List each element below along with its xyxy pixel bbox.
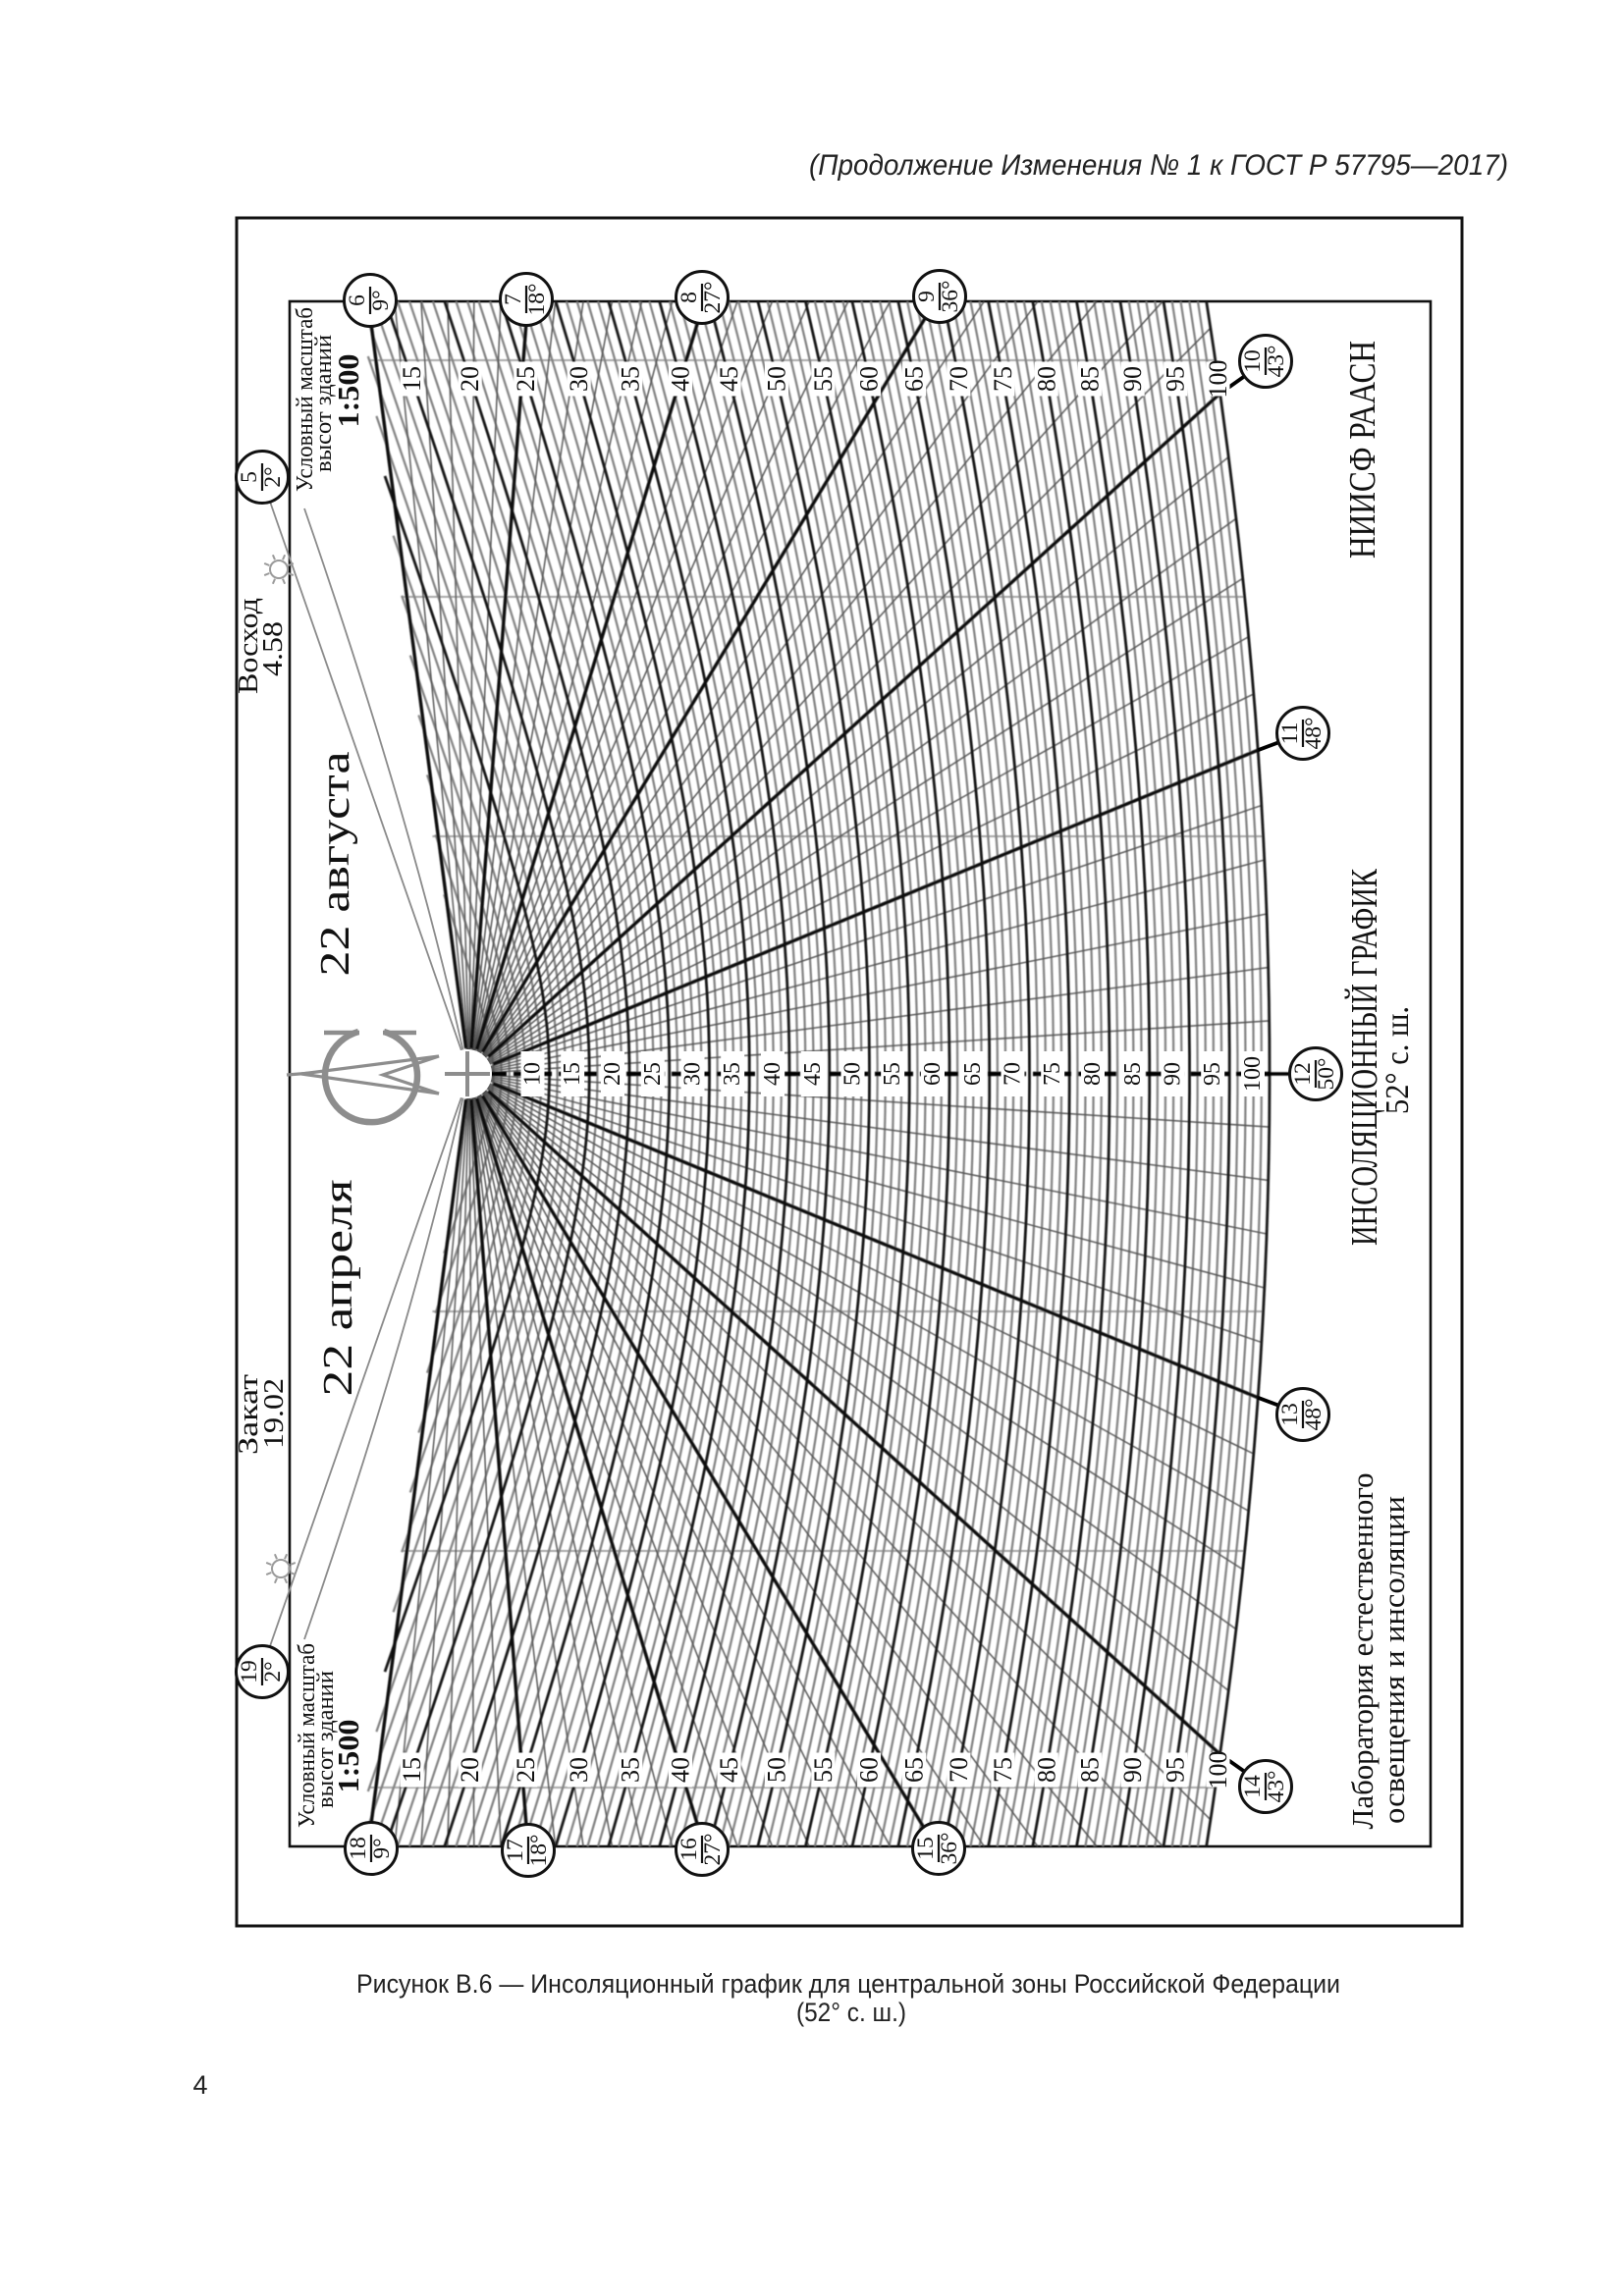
svg-text:30: 30 (680, 1062, 706, 1086)
svg-text:55: 55 (880, 1062, 905, 1086)
svg-text:22 августа: 22 августа (313, 751, 358, 976)
svg-text:55: 55 (809, 366, 838, 392)
svg-text:36°: 36° (938, 281, 963, 313)
svg-text:20: 20 (456, 1757, 484, 1783)
svg-text:8: 8 (677, 292, 702, 303)
svg-text:48°: 48° (1301, 718, 1326, 750)
svg-text:15: 15 (560, 1062, 585, 1086)
svg-text:85: 85 (1120, 1062, 1146, 1086)
svg-text:95: 95 (1200, 1062, 1225, 1086)
svg-text:9: 9 (914, 291, 940, 302)
svg-text:10: 10 (520, 1062, 546, 1086)
svg-text:19: 19 (237, 1660, 262, 1683)
svg-text:(52° с. ш.): (52° с. ш.) (796, 1998, 906, 2027)
svg-text:35: 35 (720, 1062, 745, 1086)
svg-text:19.02: 19.02 (259, 1378, 290, 1449)
svg-text:4.58: 4.58 (258, 621, 289, 676)
svg-text:100: 100 (1240, 1056, 1266, 1092)
svg-text:85: 85 (1075, 1757, 1104, 1783)
svg-text:13: 13 (1277, 1403, 1303, 1426)
svg-text:70: 70 (945, 366, 973, 392)
svg-text:43°: 43° (1264, 1771, 1289, 1803)
svg-text:27°: 27° (700, 1834, 726, 1866)
svg-text:80: 80 (1032, 1757, 1060, 1783)
svg-text:(Продолжение Изменения № 1 к Г: (Продолжение Изменения № 1 к ГОСТ Р 5779… (809, 149, 1508, 182)
svg-text:20: 20 (600, 1062, 625, 1086)
svg-text:45: 45 (800, 1062, 826, 1086)
svg-text:27°: 27° (700, 282, 726, 314)
svg-text:75: 75 (989, 366, 1017, 392)
svg-text:18°: 18° (524, 284, 550, 316)
svg-text:50: 50 (840, 1062, 866, 1086)
svg-text:2°: 2° (260, 1661, 286, 1682)
svg-text:15: 15 (913, 1837, 939, 1860)
svg-text:10: 10 (1240, 349, 1266, 373)
svg-text:16: 16 (677, 1838, 702, 1861)
svg-text:35: 35 (617, 366, 645, 392)
svg-text:35: 35 (617, 1757, 645, 1783)
svg-text:50: 50 (763, 1757, 791, 1783)
svg-text:90: 90 (1161, 1062, 1186, 1086)
svg-text:5: 5 (237, 471, 262, 483)
svg-text:65: 65 (900, 366, 929, 392)
svg-text:12: 12 (1290, 1062, 1316, 1086)
svg-text:18°: 18° (526, 1835, 552, 1867)
svg-text:45: 45 (715, 1757, 743, 1783)
svg-text:15: 15 (398, 366, 426, 392)
svg-text:освещения и инсоляции: освещения и инсоляции (1377, 1496, 1411, 1824)
svg-text:100: 100 (1204, 1751, 1232, 1789)
svg-text:50: 50 (763, 366, 791, 392)
svg-text:4: 4 (192, 2070, 207, 2100)
svg-text:43°: 43° (1264, 346, 1289, 378)
svg-text:22 апреля: 22 апреля (316, 1180, 361, 1397)
svg-text:Рисунок В.6 — Инсоляционный гр: Рисунок В.6 — Инсоляционный график для ц… (356, 1969, 1340, 1999)
svg-text:25: 25 (640, 1062, 666, 1086)
svg-text:30: 30 (565, 366, 593, 392)
svg-text:55: 55 (809, 1757, 838, 1783)
svg-text:20: 20 (456, 366, 484, 392)
svg-text:52° с. ш.: 52° с. ш. (1380, 1006, 1416, 1114)
svg-text:90: 90 (1118, 366, 1147, 392)
svg-text:70: 70 (1001, 1062, 1026, 1086)
svg-text:90: 90 (1118, 1757, 1147, 1783)
svg-text:50°: 50° (1314, 1058, 1339, 1091)
svg-text:65: 65 (900, 1757, 929, 1783)
svg-text:Лаборатория естественного: Лаборатория естественного (1345, 1473, 1380, 1830)
svg-text:7: 7 (501, 294, 526, 305)
svg-text:80: 80 (1080, 1062, 1106, 1086)
svg-text:25: 25 (512, 366, 540, 392)
svg-text:9°: 9° (369, 1838, 395, 1858)
svg-text:100: 100 (1204, 360, 1232, 399)
svg-text:НИИСФ РААСН: НИИСФ РААСН (1342, 341, 1383, 559)
svg-text:14: 14 (1240, 1775, 1266, 1798)
svg-text:60: 60 (920, 1062, 946, 1086)
svg-text:30: 30 (565, 1757, 593, 1783)
svg-text:75: 75 (1040, 1062, 1065, 1086)
svg-text:18: 18 (346, 1837, 371, 1860)
svg-text:17: 17 (503, 1839, 528, 1862)
svg-text:45: 45 (715, 366, 743, 392)
svg-text:60: 60 (855, 1757, 884, 1783)
svg-text:36°: 36° (937, 1833, 962, 1865)
svg-text:9°: 9° (368, 290, 394, 310)
svg-text:85: 85 (1075, 366, 1104, 392)
svg-text:1:500: 1:500 (331, 1720, 365, 1793)
svg-text:95: 95 (1162, 366, 1190, 392)
svg-text:2°: 2° (260, 466, 286, 487)
svg-text:80: 80 (1032, 366, 1060, 392)
svg-text:60: 60 (855, 366, 884, 392)
svg-text:75: 75 (989, 1757, 1017, 1783)
svg-text:40: 40 (667, 1757, 695, 1783)
svg-text:70: 70 (945, 1757, 973, 1783)
svg-text:40: 40 (667, 366, 695, 392)
svg-text:65: 65 (960, 1062, 986, 1086)
svg-text:1:500: 1:500 (331, 354, 365, 428)
svg-text:25: 25 (512, 1757, 540, 1783)
svg-text:11: 11 (1277, 722, 1303, 745)
svg-text:48°: 48° (1301, 1399, 1326, 1431)
svg-text:40: 40 (760, 1062, 785, 1086)
svg-text:15: 15 (398, 1757, 426, 1783)
svg-text:95: 95 (1162, 1757, 1190, 1783)
svg-text:6: 6 (345, 294, 370, 306)
